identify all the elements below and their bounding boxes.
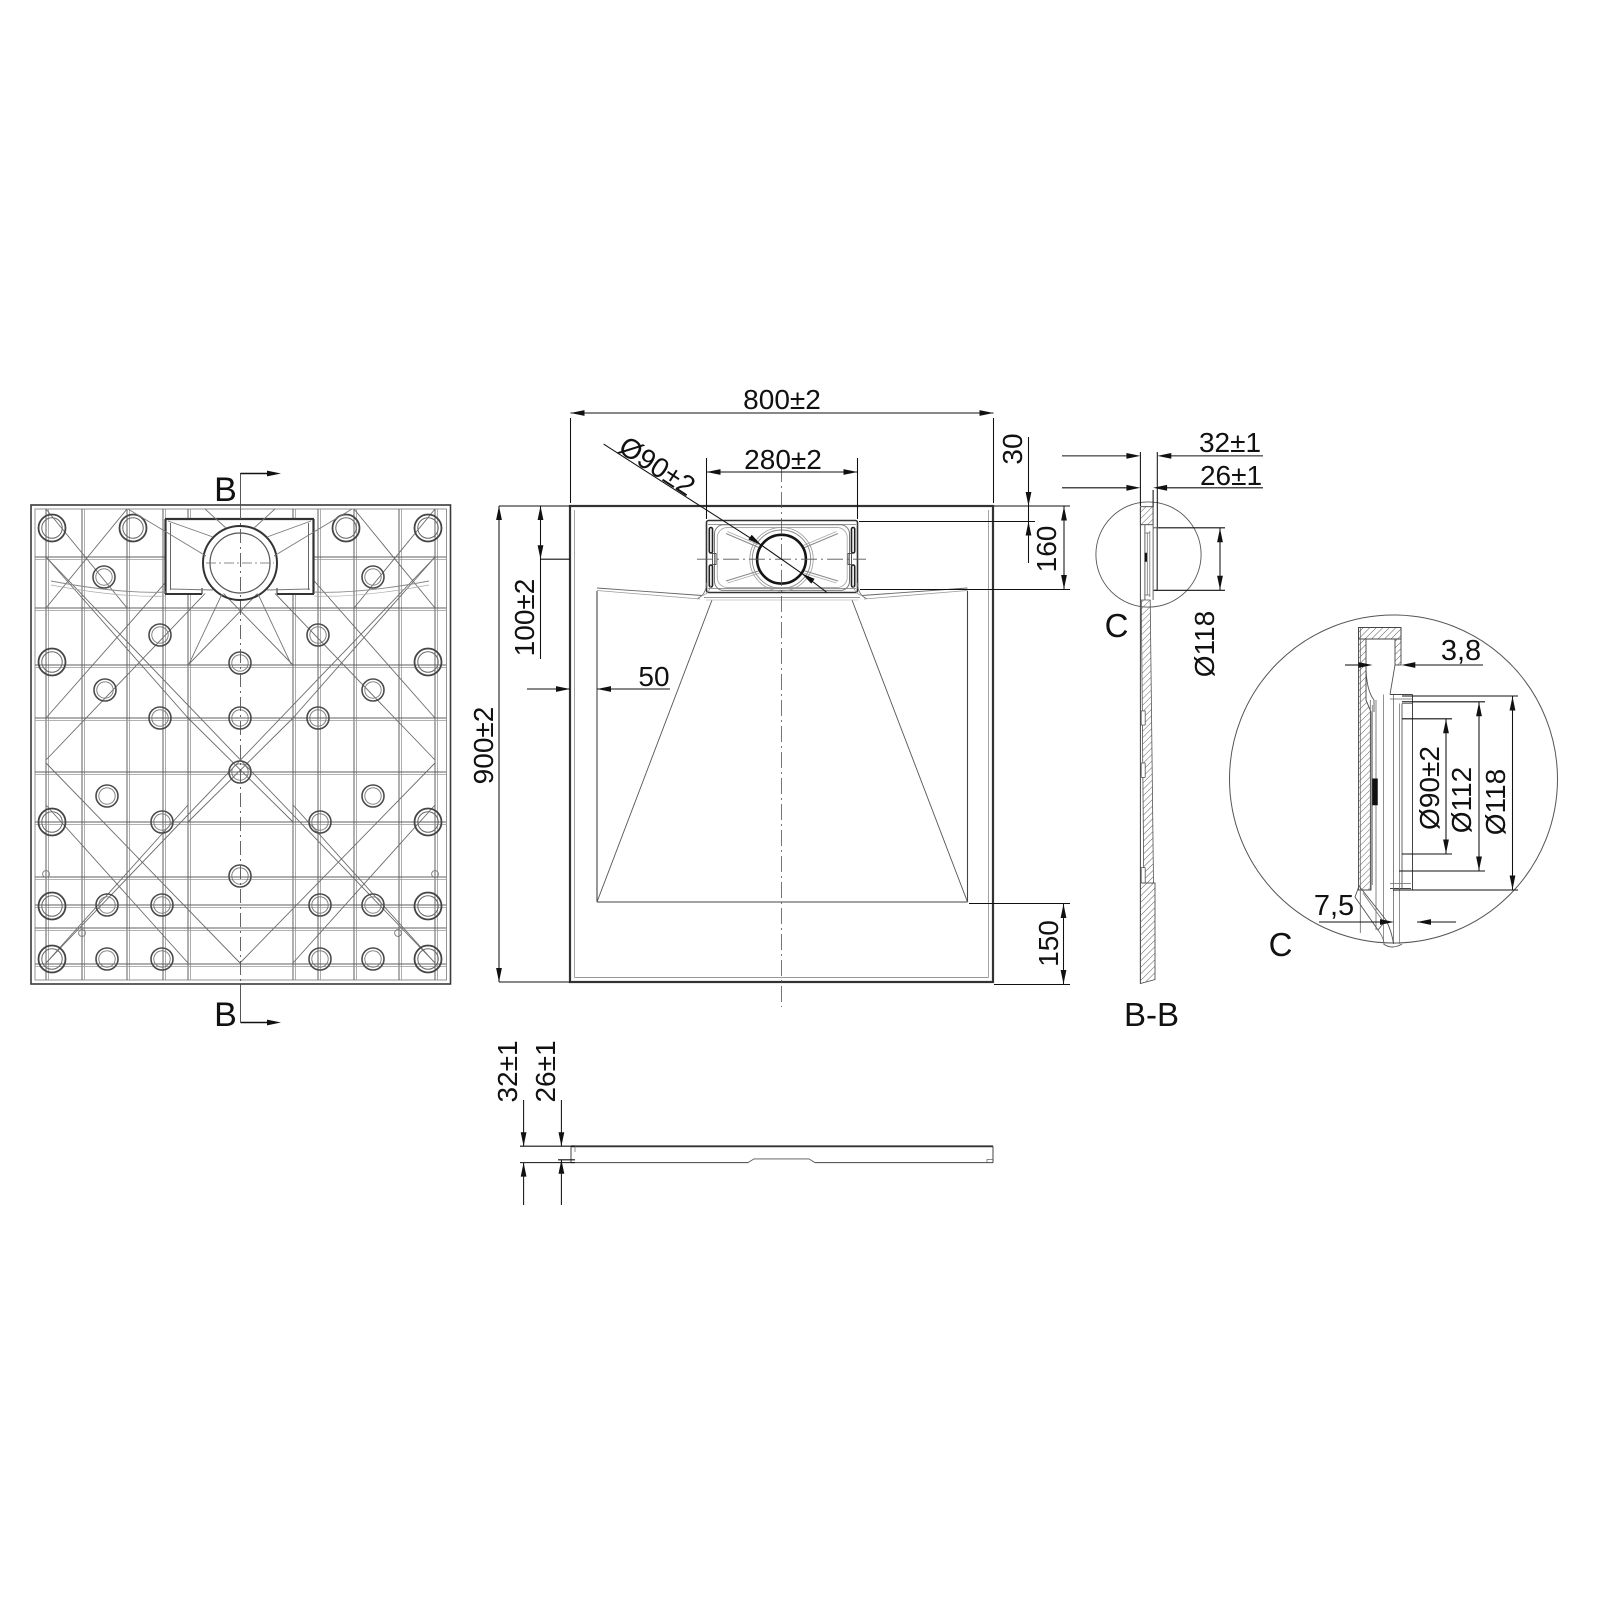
svg-text:800±2: 800±2 [743,384,821,415]
svg-text:7,5: 7,5 [1314,890,1354,922]
svg-text:3,8: 3,8 [1441,635,1481,667]
svg-text:Ø112: Ø112 [1446,767,1477,833]
svg-text:26±1: 26±1 [530,1040,561,1102]
svg-text:C: C [1269,926,1293,963]
svg-text:B: B [214,996,237,1034]
svg-text:26±1: 26±1 [1200,460,1262,491]
svg-text:280±2: 280±2 [744,444,822,475]
svg-text:Ø118: Ø118 [1189,611,1220,677]
svg-text:Ø90±2: Ø90±2 [1414,746,1445,830]
svg-text:32±1: 32±1 [492,1040,523,1102]
svg-text:B-B: B-B [1124,996,1179,1033]
svg-text:Ø118: Ø118 [1480,769,1511,835]
svg-text:160: 160 [1031,526,1062,573]
svg-text:900±2: 900±2 [468,707,499,785]
svg-text:50: 50 [638,661,669,692]
svg-text:C: C [1105,607,1129,644]
svg-text:30: 30 [997,433,1028,464]
svg-text:32±1: 32±1 [1199,427,1261,458]
svg-text:150: 150 [1033,920,1064,967]
svg-text:B: B [214,471,237,509]
svg-text:100±2: 100±2 [509,579,540,657]
